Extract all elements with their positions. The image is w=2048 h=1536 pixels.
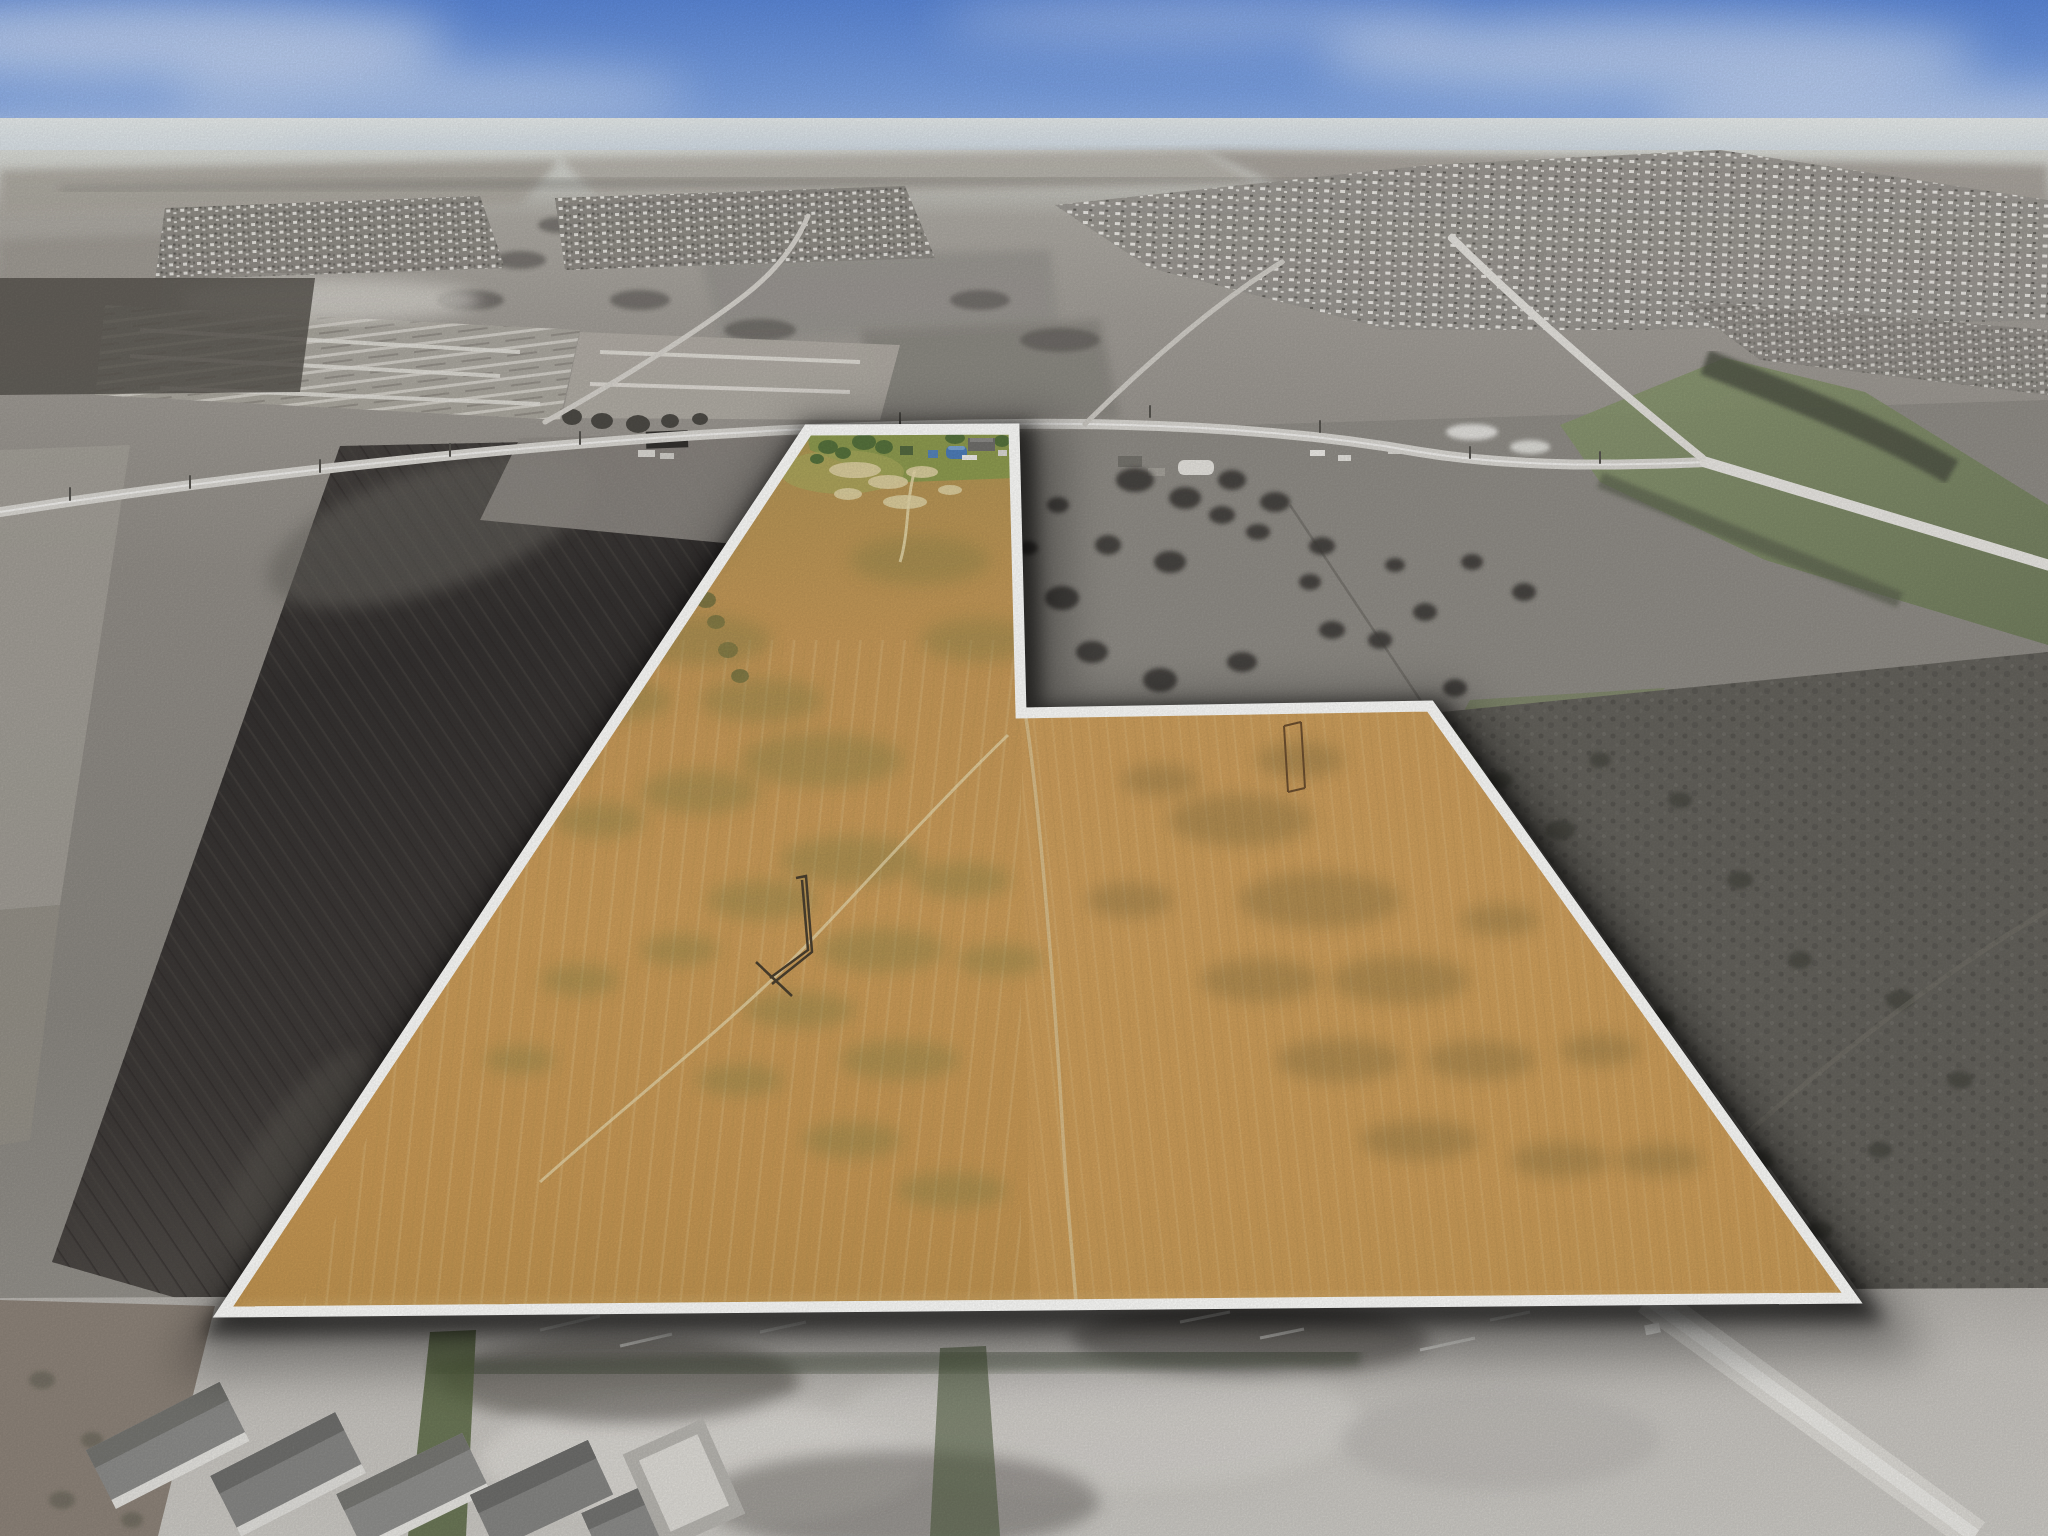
grain-overlay [0, 0, 2048, 1536]
aerial-photo [0, 0, 2048, 1536]
